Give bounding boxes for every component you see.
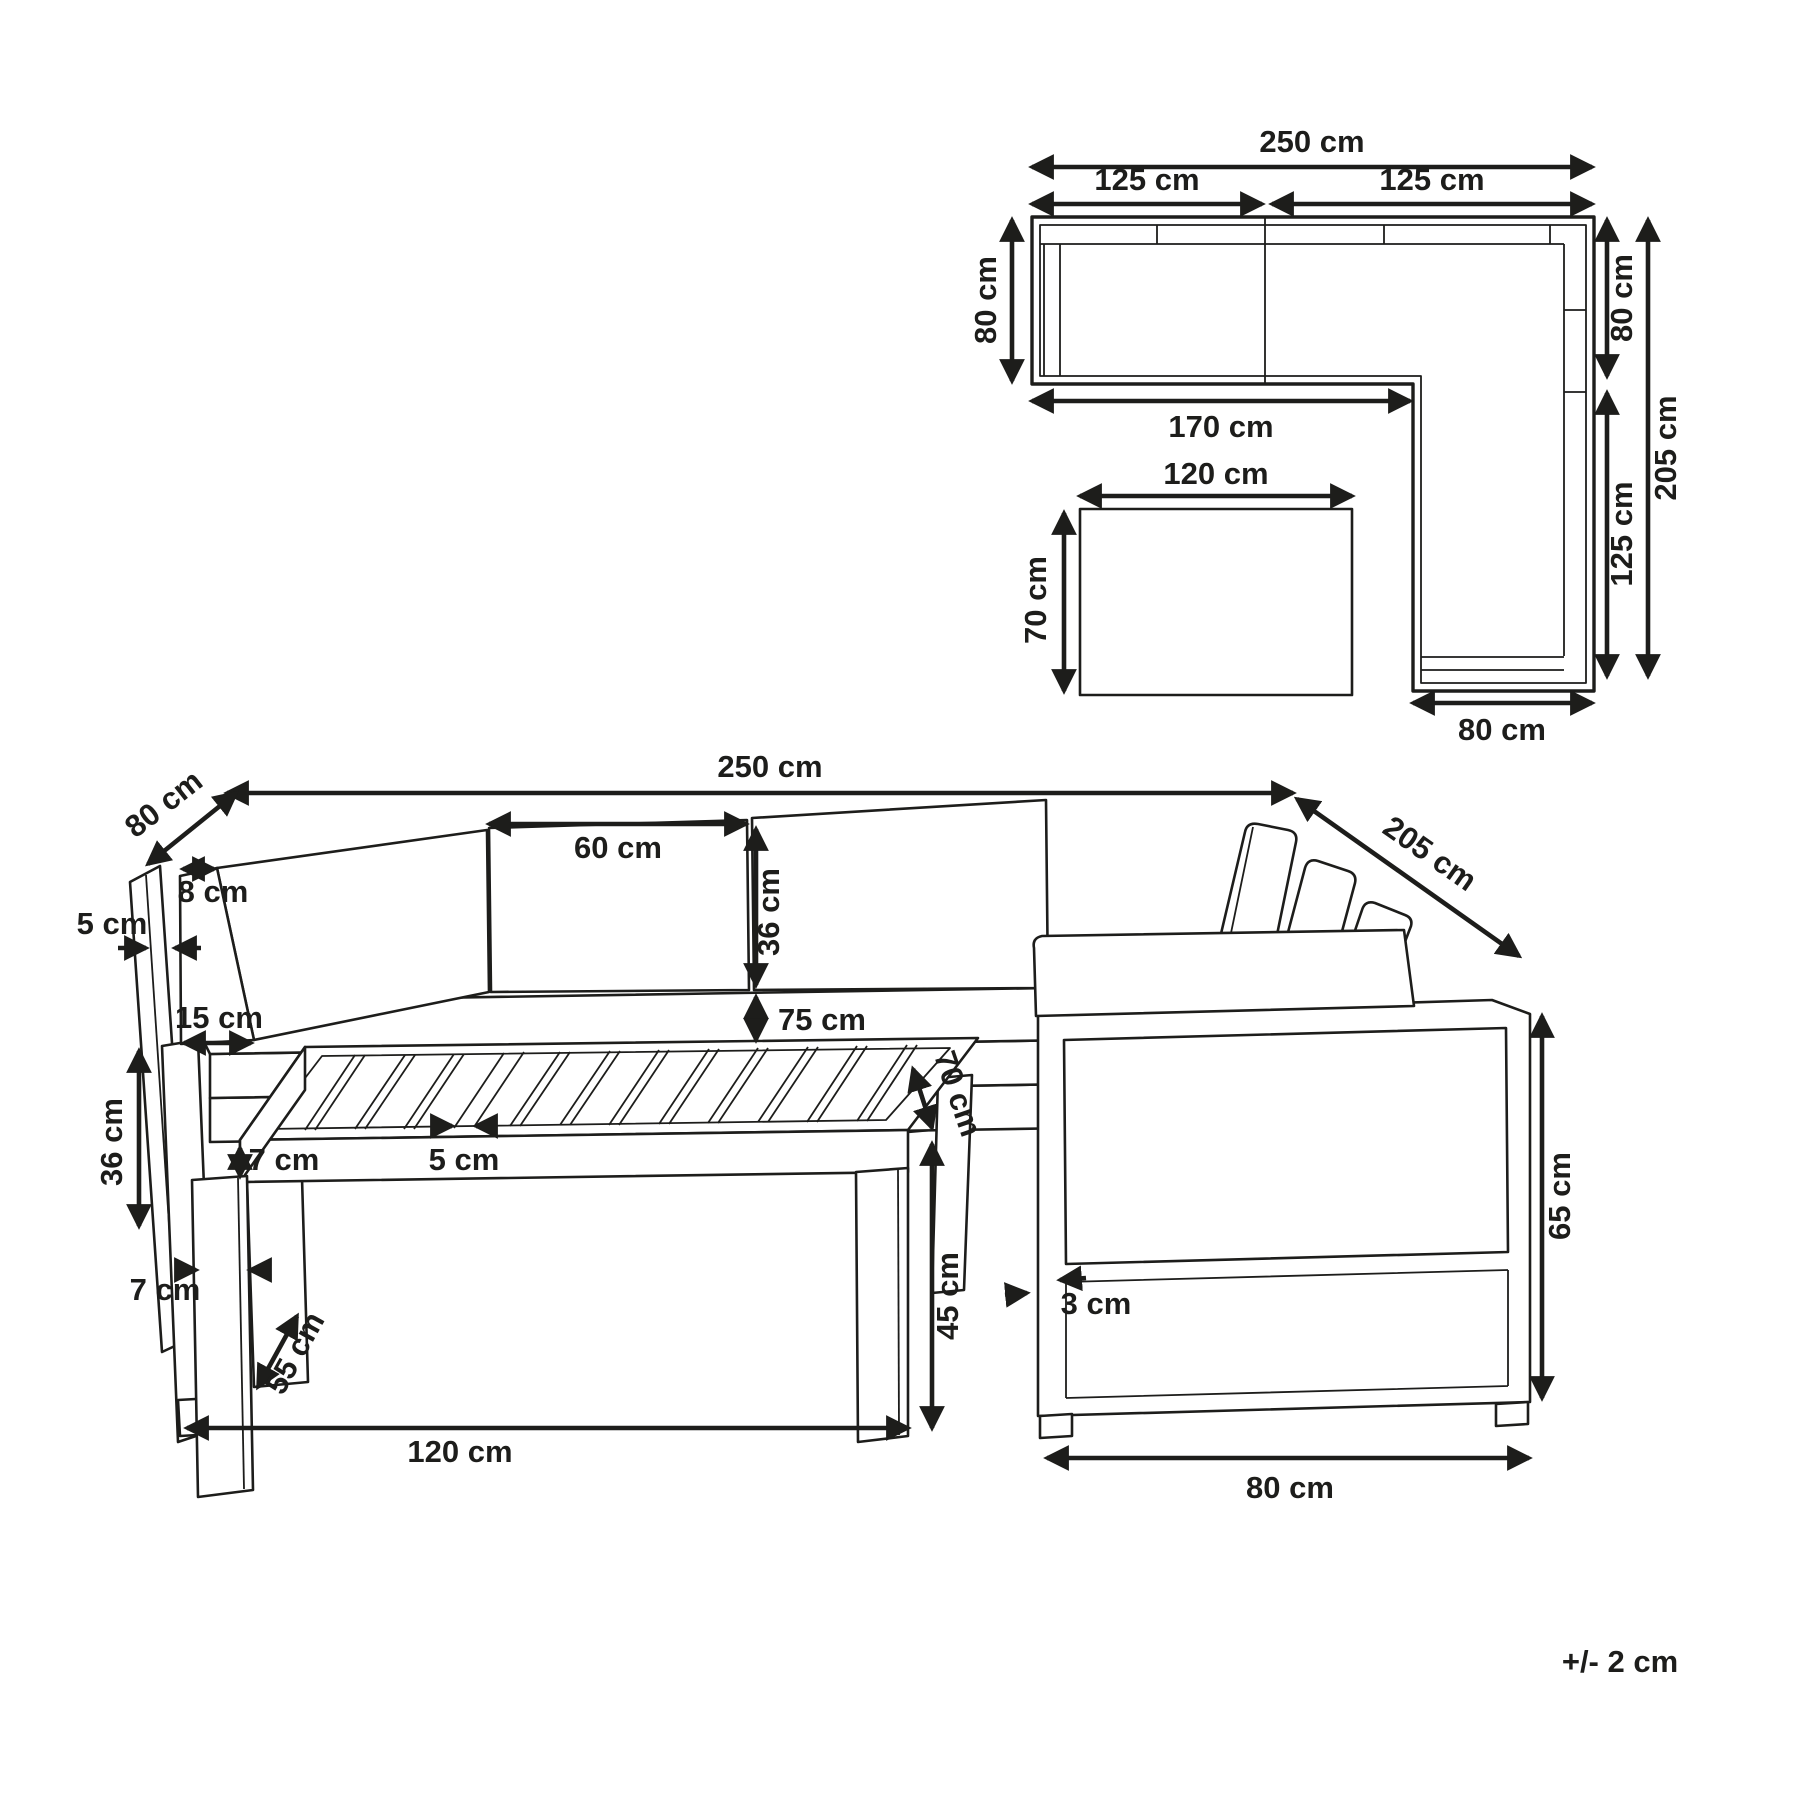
dim-label-cushion-top: 8 cm bbox=[178, 874, 249, 909]
dim-label-profile: 3 cm bbox=[1061, 1286, 1132, 1321]
dim-label-plan-left-depth: 80 cm bbox=[968, 256, 1003, 344]
dim-label-section-width: 80 cm bbox=[1246, 1470, 1334, 1505]
dim-arrow-profile-right bbox=[1060, 1278, 1086, 1280]
dim-label-panel-thickness: 5 cm bbox=[77, 906, 148, 941]
dim-label-plan-left-module: 125 cm bbox=[1094, 162, 1199, 197]
furniture-dimension-sheet: 250 cm 125 cm 125 cm 80 cm 170 cm 120 cm… bbox=[0, 0, 1800, 1800]
right-frame-panel bbox=[1064, 1028, 1508, 1264]
plan-table bbox=[1080, 509, 1352, 695]
dim-label-plan-bottom-width: 170 cm bbox=[1168, 409, 1273, 444]
dim-label-side-depth: 80 cm bbox=[118, 763, 209, 845]
dim-label-plan-right-module: 125 cm bbox=[1379, 162, 1484, 197]
right-seat-cushion bbox=[1034, 930, 1414, 1016]
back-cushion-c bbox=[752, 800, 1048, 990]
dim-arrow-profile-left bbox=[1005, 1293, 1027, 1295]
dim-label-top-thickness: 7 cm bbox=[249, 1142, 320, 1177]
dim-label-slat-gap: 5 cm bbox=[429, 1142, 500, 1177]
table-apron-front bbox=[240, 1130, 908, 1182]
dim-label-right-length: 205 cm bbox=[1377, 809, 1483, 898]
dim-label-plan-right-lower: 125 cm bbox=[1604, 481, 1639, 586]
dim-label-plan-right-end: 80 cm bbox=[1458, 712, 1546, 747]
right-foot-right bbox=[1496, 1402, 1528, 1426]
right-foot-left bbox=[1040, 1414, 1072, 1438]
dim-label-plan-right-depth: 80 cm bbox=[1604, 254, 1639, 342]
dim-label-cushion-width: 60 cm bbox=[574, 830, 662, 865]
dim-label-side-height: 65 cm bbox=[1542, 1152, 1577, 1240]
dim-label-seat-height: 75 cm bbox=[778, 1002, 866, 1037]
dim-label-frame-height: 36 cm bbox=[94, 1098, 129, 1186]
dim-label-leg-width: 7 cm bbox=[130, 1272, 201, 1307]
plan-view: 250 cm 125 cm 125 cm 80 cm 170 cm 120 cm… bbox=[968, 124, 1683, 747]
dim-label-cushion-height: 36 cm bbox=[751, 868, 786, 956]
technical-drawing: 250 cm 125 cm 125 cm 80 cm 170 cm 120 cm… bbox=[0, 0, 1800, 1800]
dim-label-table-height: 45 cm bbox=[930, 1252, 965, 1340]
sofa-right-section bbox=[1034, 824, 1530, 1438]
dim-label-plan-table-length: 120 cm bbox=[1163, 456, 1268, 491]
dim-label-total-width: 250 cm bbox=[717, 749, 822, 784]
dim-label-plan-total-width: 250 cm bbox=[1259, 124, 1364, 159]
dim-label-plan-table-depth: 70 cm bbox=[1018, 556, 1053, 644]
table-leg-front-right bbox=[856, 1168, 908, 1442]
dim-label-cushion-bottom: 15 cm bbox=[175, 1000, 263, 1035]
table-leg-front-right-edge bbox=[898, 1170, 899, 1435]
perspective-view: 250 cm 80 cm 205 cm 60 cm 36 cm 8 cm 5 c… bbox=[77, 749, 1577, 1505]
tolerance-note: +/- 2 cm bbox=[1562, 1644, 1678, 1679]
dim-label-table-length: 120 cm bbox=[407, 1434, 512, 1469]
dim-label-plan-right-total: 205 cm bbox=[1648, 395, 1683, 500]
